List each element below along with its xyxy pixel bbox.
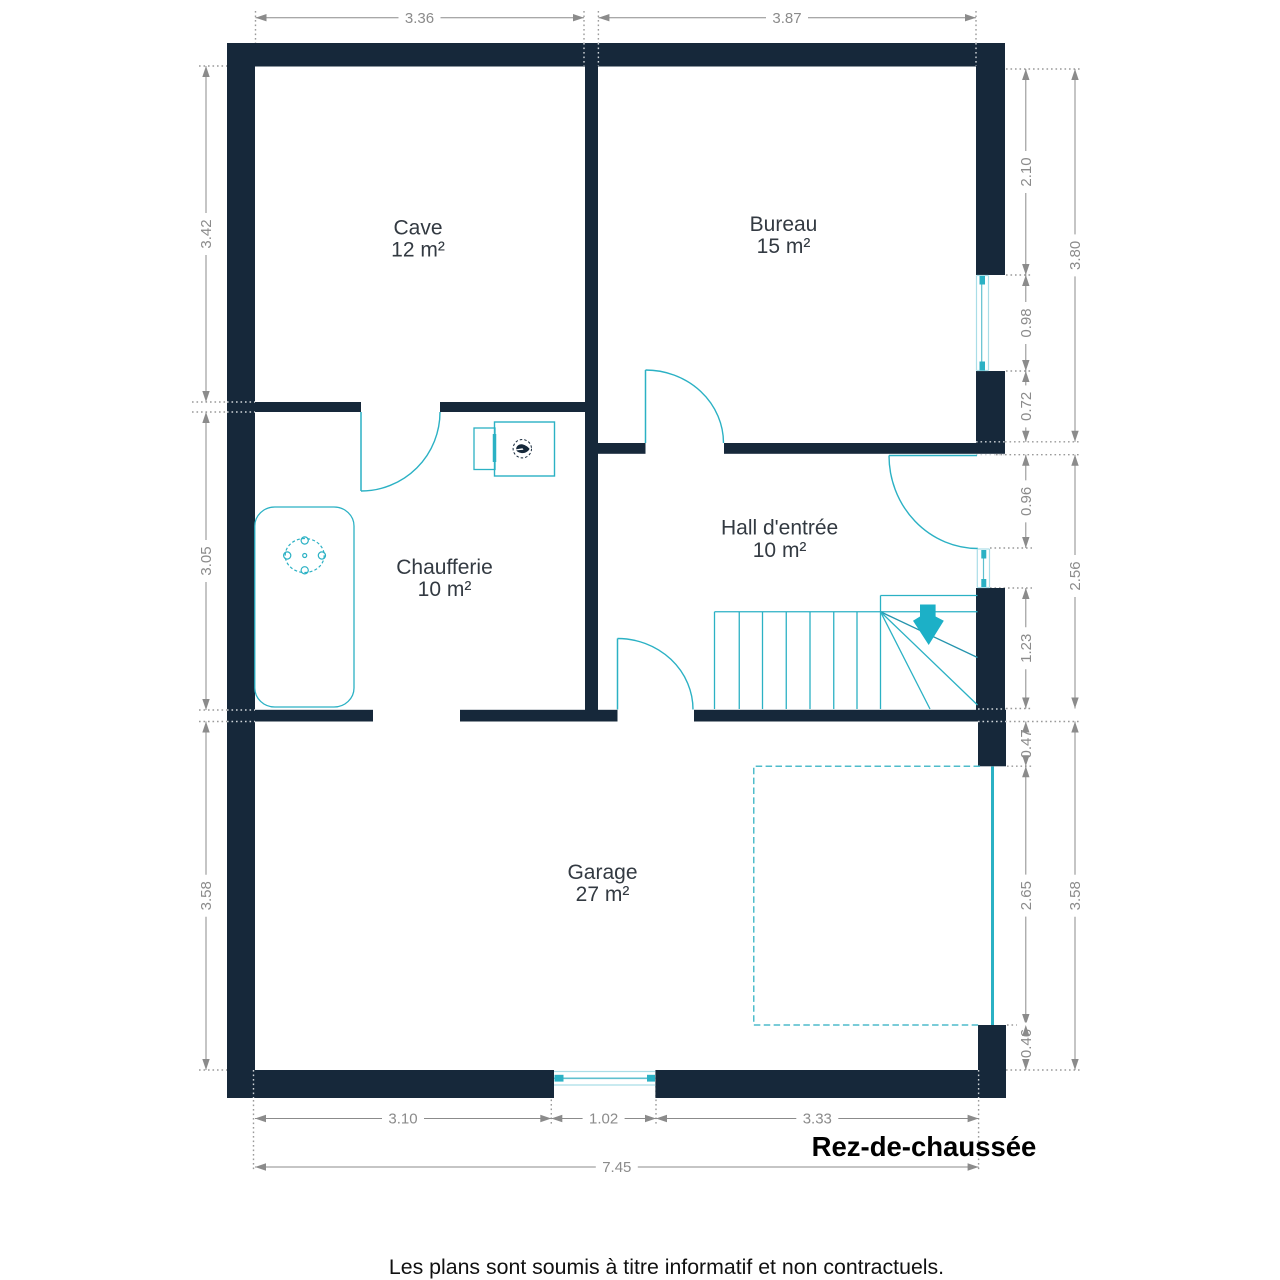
svg-text:12 m²: 12 m² <box>391 239 445 262</box>
svg-text:3.42: 3.42 <box>198 219 215 248</box>
svg-text:Bureau: Bureau <box>750 213 818 236</box>
svg-text:Chaufferie: Chaufferie <box>396 556 493 579</box>
svg-text:Cave: Cave <box>393 217 442 240</box>
svg-text:3.10: 3.10 <box>388 1111 417 1128</box>
svg-text:2.56: 2.56 <box>1067 561 1084 590</box>
svg-text:7.45: 7.45 <box>602 1159 631 1176</box>
svg-text:2.10: 2.10 <box>1018 157 1035 186</box>
svg-text:15 m²: 15 m² <box>757 235 811 258</box>
svg-text:27 m²: 27 m² <box>576 883 630 906</box>
svg-text:3.36: 3.36 <box>405 10 434 27</box>
svg-text:3.05: 3.05 <box>198 546 215 575</box>
svg-text:10 m²: 10 m² <box>753 539 807 562</box>
svg-text:3.33: 3.33 <box>803 1111 832 1128</box>
svg-text:0.47: 0.47 <box>1018 729 1035 758</box>
svg-text:0.98: 0.98 <box>1018 308 1035 337</box>
svg-text:1.23: 1.23 <box>1018 634 1035 663</box>
svg-text:Les plans sont soumis à titre: Les plans sont soumis à titre informatif… <box>389 1255 944 1279</box>
svg-text:3.80: 3.80 <box>1067 241 1084 270</box>
svg-text:2.65: 2.65 <box>1018 881 1035 910</box>
svg-text:1.02: 1.02 <box>589 1111 618 1128</box>
svg-text:3.58: 3.58 <box>1067 881 1084 910</box>
svg-text:Garage: Garage <box>567 861 637 884</box>
svg-text:0.96: 0.96 <box>1018 487 1035 516</box>
svg-text:0.72: 0.72 <box>1018 392 1035 421</box>
svg-text:10 m²: 10 m² <box>418 578 472 601</box>
svg-text:3.87: 3.87 <box>772 10 801 27</box>
svg-text:Rez-de-chaussée: Rez-de-chaussée <box>812 1131 1037 1162</box>
svg-text:3.58: 3.58 <box>198 881 215 910</box>
svg-text:Hall d'entrée: Hall d'entrée <box>721 517 838 540</box>
